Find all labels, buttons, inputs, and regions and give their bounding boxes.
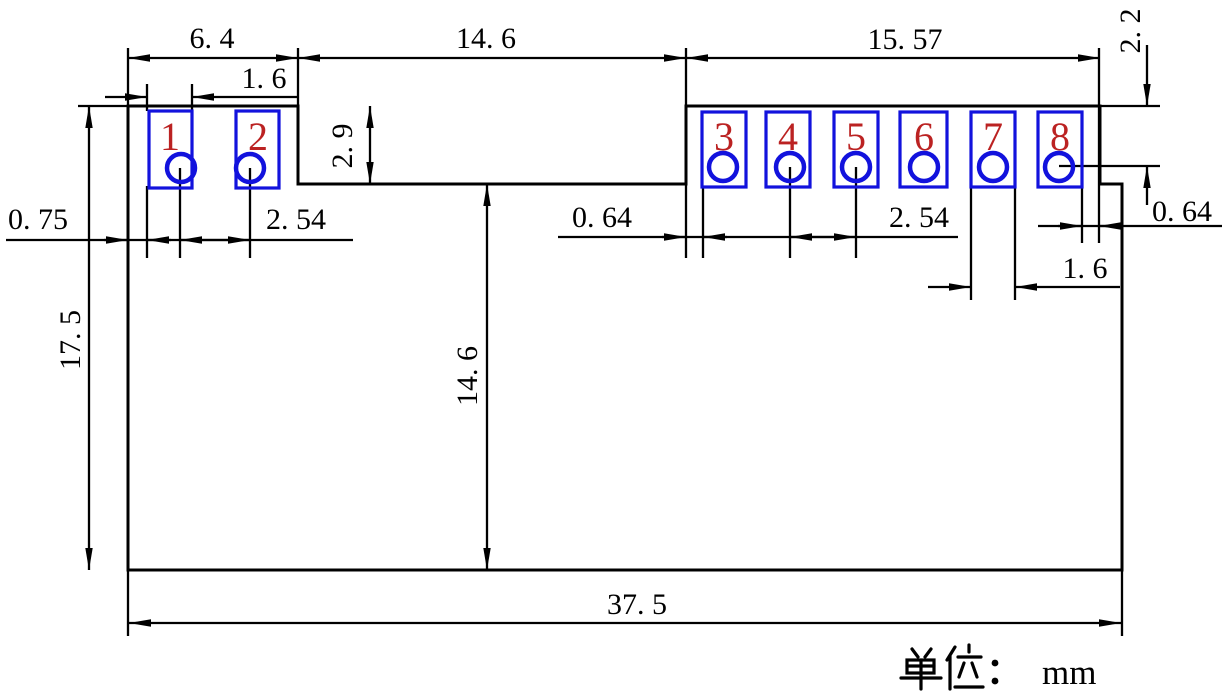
pad-6: 6	[900, 112, 947, 187]
pin-4-label: 4	[778, 114, 798, 159]
module-outline	[128, 106, 1122, 570]
unit-note: mm	[901, 645, 1096, 692]
unit-colon	[992, 660, 999, 685]
dimension-labels: 6. 4 14. 6 15. 57 1. 6 0. 75 2. 54 0. 64…	[8, 9, 1212, 622]
dim-label-notch-depth: 2. 9	[326, 124, 359, 169]
dim-label-hole-top-offset: 2. 2	[1114, 9, 1147, 54]
dim-label-edge-clearance-right: 0. 64	[1152, 195, 1212, 228]
unit-char-dan	[901, 649, 941, 689]
dim-label-notch-clearance: 0. 64	[572, 201, 632, 234]
pad-1: 1	[149, 111, 195, 188]
pad-8: 8	[1038, 112, 1082, 187]
dim-label-notch-span: 14. 6	[456, 22, 516, 55]
pin-1-label: 1	[160, 114, 180, 159]
dim-label-pad-width-right: 1. 6	[1063, 252, 1108, 285]
dim-label-pad-width-left: 1. 6	[242, 62, 287, 95]
dim-label-body-height: 17. 5	[54, 310, 87, 370]
unit-char-wei	[947, 645, 983, 689]
dim-label-body-width: 37. 5	[607, 588, 667, 621]
pad-3: 3	[702, 112, 746, 187]
dim-label-pitch-right: 2. 54	[889, 201, 949, 234]
pads: 1 2 3 4 5 6 7	[149, 111, 1082, 188]
pin-5-label: 5	[846, 114, 866, 159]
unit-value: mm	[1042, 653, 1096, 692]
pad-2: 2	[236, 111, 279, 188]
dim-label-left-span: 6. 4	[190, 22, 235, 55]
pad-7: 7	[971, 112, 1015, 187]
dim-label-pitch-left: 2. 54	[266, 203, 326, 236]
dim-label-notch-bottom-height: 14. 6	[451, 346, 484, 406]
dim-label-edge-clearance-left: 0. 75	[8, 203, 68, 236]
pin-3-label: 3	[714, 114, 734, 159]
pin-2-label: 2	[248, 114, 268, 159]
pin-7-label: 7	[983, 114, 1003, 159]
pin-6-label: 6	[914, 114, 934, 159]
technical-drawing-page: 6. 4 14. 6 15. 57 1. 6 0. 75 2. 54 0. 64…	[0, 0, 1225, 692]
technical-drawing-canvas: 6. 4 14. 6 15. 57 1. 6 0. 75 2. 54 0. 64…	[0, 0, 1225, 692]
pin-8-label: 8	[1050, 114, 1070, 159]
pad-4: 4	[766, 112, 810, 187]
dim-label-right-span: 15. 57	[868, 23, 943, 56]
